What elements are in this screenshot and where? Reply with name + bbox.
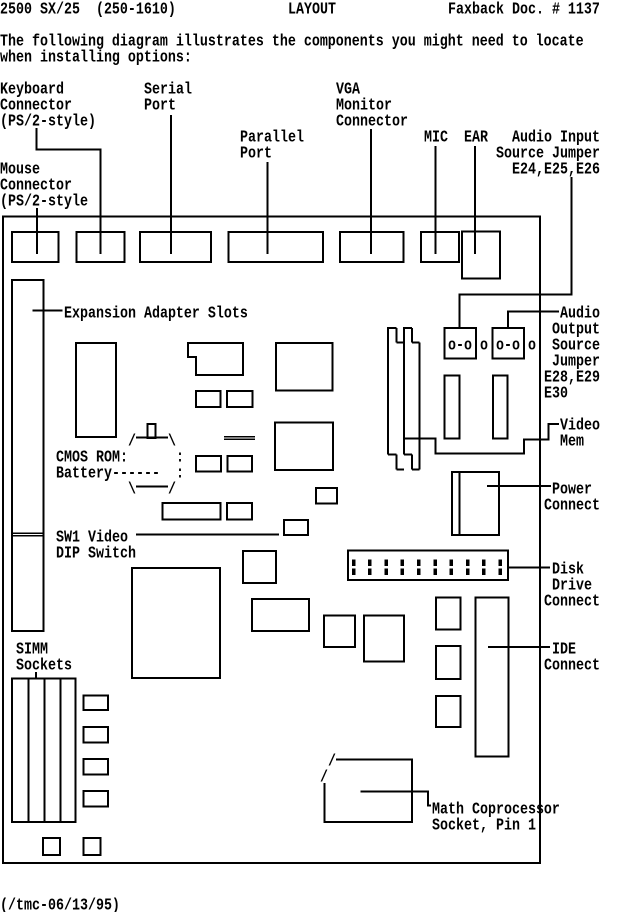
svg-text:Port: Port xyxy=(144,95,176,115)
svg-text:MIC: MIC xyxy=(424,127,448,147)
svg-text::: : xyxy=(176,463,184,483)
svg-text:Faxback Doc. # 1137: Faxback Doc. # 1137 xyxy=(448,0,600,19)
svg-text:(PS/2-style): (PS/2-style) xyxy=(0,111,96,131)
svg-text:EAR: EAR xyxy=(464,127,489,147)
svg-text:o-o o o-o o: o-o o o-o o xyxy=(448,335,536,355)
svg-text:Connect: Connect xyxy=(544,591,600,611)
svg-text:/: / xyxy=(128,431,136,451)
svg-text:Port: Port xyxy=(240,143,272,163)
svg-text:DIP Switch: DIP Switch xyxy=(56,543,136,563)
svg-text:Sockets: Sockets xyxy=(16,655,72,675)
svg-text:\: \ xyxy=(168,431,176,451)
svg-text:Connect: Connect xyxy=(544,655,600,675)
svg-text:Connect: Connect xyxy=(544,495,600,515)
svg-text:/: / xyxy=(168,479,176,499)
svg-text:(PS/2-style: (PS/2-style xyxy=(0,191,88,211)
svg-text:when installing options:: when installing options: xyxy=(0,47,192,67)
svg-text:E30: E30 xyxy=(544,383,568,403)
svg-text:LAYOUT: LAYOUT xyxy=(288,0,336,19)
svg-text:Battery: Battery xyxy=(56,463,112,483)
svg-text:2500 SX/25 (250-1610): 2500 SX/25 (250-1610) xyxy=(0,0,176,19)
svg-text:/: / xyxy=(328,751,336,771)
svg-text:/: / xyxy=(320,767,328,787)
svg-text:(/tmc-06/13/95): (/tmc-06/13/95) xyxy=(0,895,120,912)
svg-text:Mem: Mem xyxy=(560,431,584,451)
svg-text:Socket, Pin 1: Socket, Pin 1 xyxy=(432,815,536,835)
svg-text:Expansion Adapter Slots: Expansion Adapter Slots xyxy=(64,303,248,323)
svg-text:E24,E25,E26: E24,E25,E26 xyxy=(512,159,600,179)
svg-text:\: \ xyxy=(128,479,136,499)
svg-text:Connector: Connector xyxy=(336,111,408,131)
